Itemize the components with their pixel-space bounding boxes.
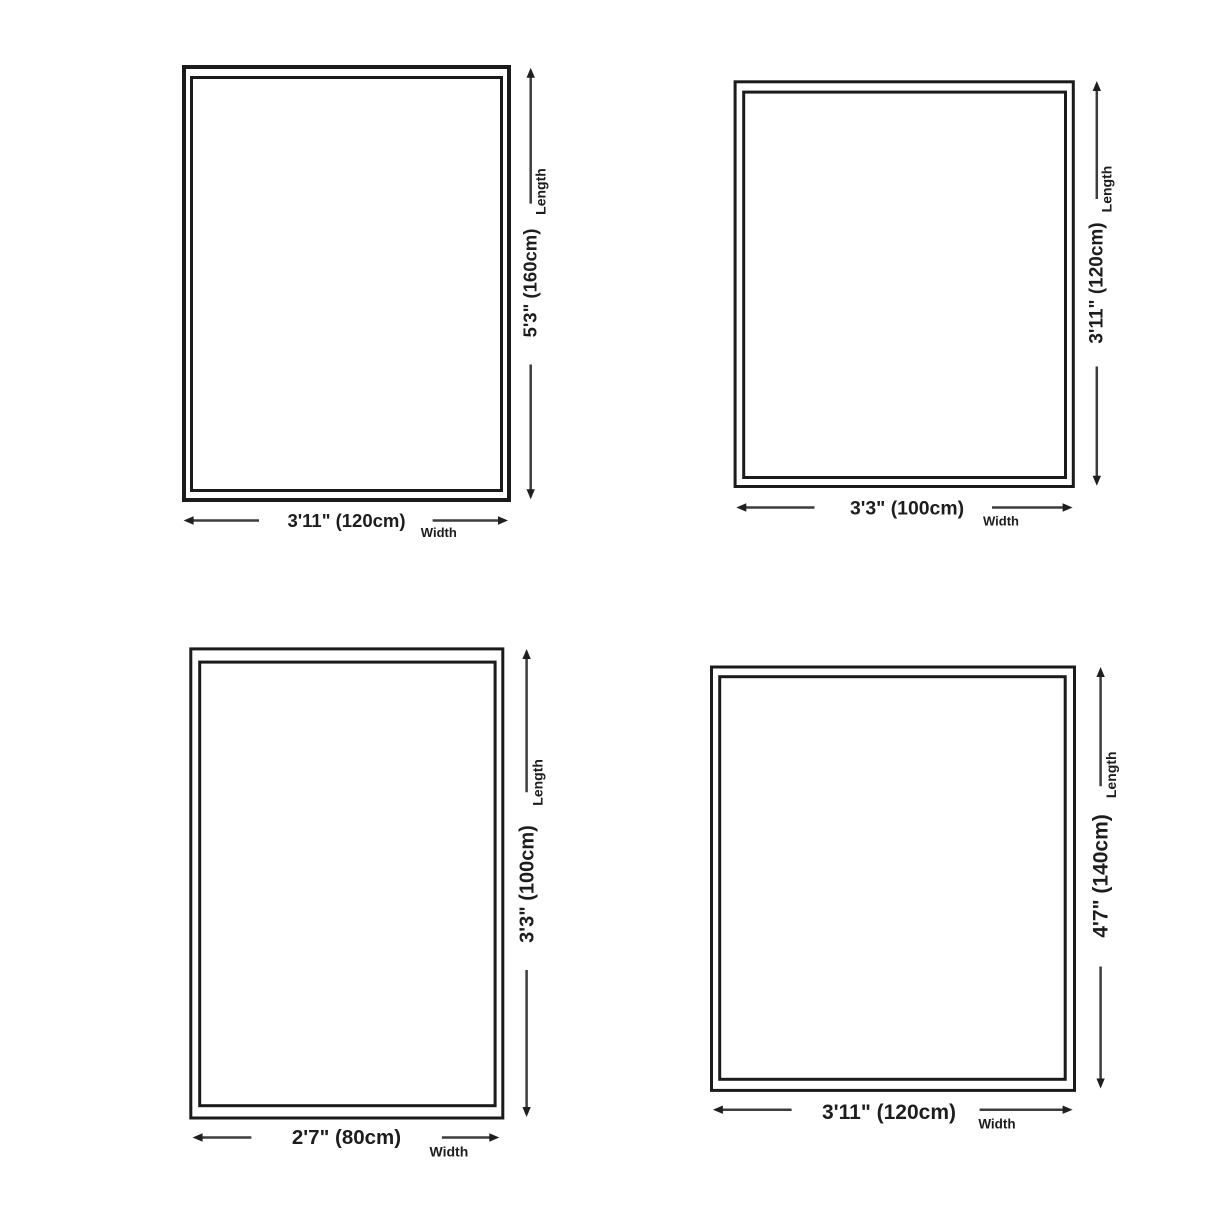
svg-text:3'3" (100cm): 3'3" (100cm): [517, 825, 539, 943]
svg-text:4'7" (140cm): 4'7" (140cm): [1089, 814, 1112, 938]
svg-text:Length: Length: [529, 759, 545, 806]
svg-text:3'11" (120cm): 3'11" (120cm): [287, 510, 405, 531]
svg-text:5'3" (160cm): 5'3" (160cm): [519, 229, 540, 338]
svg-text:3'11" (120cm): 3'11" (120cm): [822, 1101, 956, 1124]
svg-text:Width: Width: [421, 525, 457, 540]
svg-text:2'7" (80cm): 2'7" (80cm): [292, 1126, 401, 1149]
svg-text:Width: Width: [983, 513, 1019, 528]
svg-text:Length: Length: [1098, 166, 1114, 213]
svg-text:Length: Length: [1103, 751, 1119, 798]
svg-text:Length: Length: [532, 168, 548, 215]
svg-text:3'11" (120cm): 3'11" (120cm): [1087, 222, 1108, 343]
svg-text:Width: Width: [430, 1143, 469, 1159]
svg-text:3'3" (100cm): 3'3" (100cm): [850, 498, 964, 520]
svg-text:Width: Width: [978, 1116, 1015, 1131]
